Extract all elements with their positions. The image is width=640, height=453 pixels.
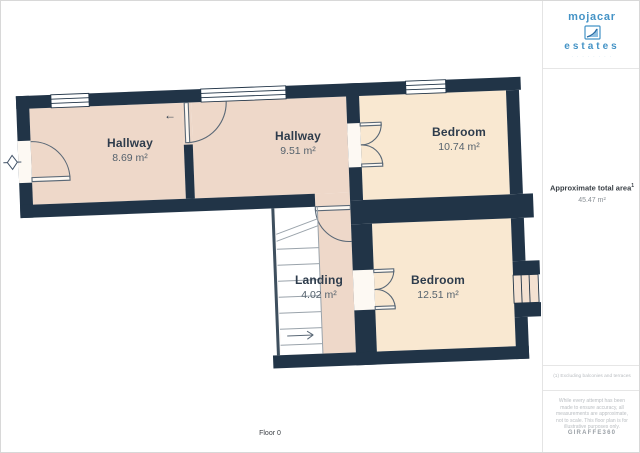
agency-logo-icon xyxy=(584,25,601,40)
logo-tagline: · · · · · · · · xyxy=(543,54,640,59)
bedroom2-door-opening xyxy=(353,270,376,311)
total-area-block: Approximate total area1 45.47 m² xyxy=(543,183,640,204)
logo-text-bottom: estates xyxy=(543,41,640,52)
total-area-label-text: Approximate total area xyxy=(550,184,631,193)
window-hallway2 xyxy=(201,86,286,102)
landing-door-gap xyxy=(315,192,350,206)
window-bedroom2-side xyxy=(513,274,539,303)
window-bedroom1 xyxy=(406,80,446,95)
wall-stub-upper xyxy=(513,260,541,275)
sidebar-divider xyxy=(543,68,640,69)
agency-logo: mojacar estates · · · · · · · · xyxy=(543,11,640,59)
hallway-1-floor xyxy=(29,103,186,205)
wall-stub-lower xyxy=(514,302,541,317)
total-area-footnote-ref: 1 xyxy=(631,183,634,189)
sidebar-divider xyxy=(543,390,640,391)
window-hallway1 xyxy=(51,93,89,107)
total-area-label: Approximate total area1 xyxy=(543,183,640,193)
bedroom-1-floor xyxy=(359,90,510,200)
floorplan-page: Hallway 8.69 m² Hallway 9.51 m² Bedroom … xyxy=(0,0,640,453)
total-area-value: 45.47 m² xyxy=(543,197,640,204)
disclaimer-text: While every attempt has been made to ens… xyxy=(552,398,632,431)
floorplan-drawing xyxy=(1,1,541,453)
bedroom-2-floor xyxy=(372,218,516,351)
logo-text-top: mojacar xyxy=(543,11,640,23)
wall-bedroom2-right-upper xyxy=(511,218,526,261)
sidebar-divider xyxy=(543,365,640,366)
hallway-2-floor xyxy=(191,97,350,199)
bedroom1-door-opening xyxy=(347,123,362,167)
brand-logo-text: GIRAFFE360 xyxy=(543,430,640,436)
sidebar: mojacar estates · · · · · · · · Approxim… xyxy=(542,1,640,453)
footnote-text: (1) Excluding balconies and terraces xyxy=(543,374,640,379)
